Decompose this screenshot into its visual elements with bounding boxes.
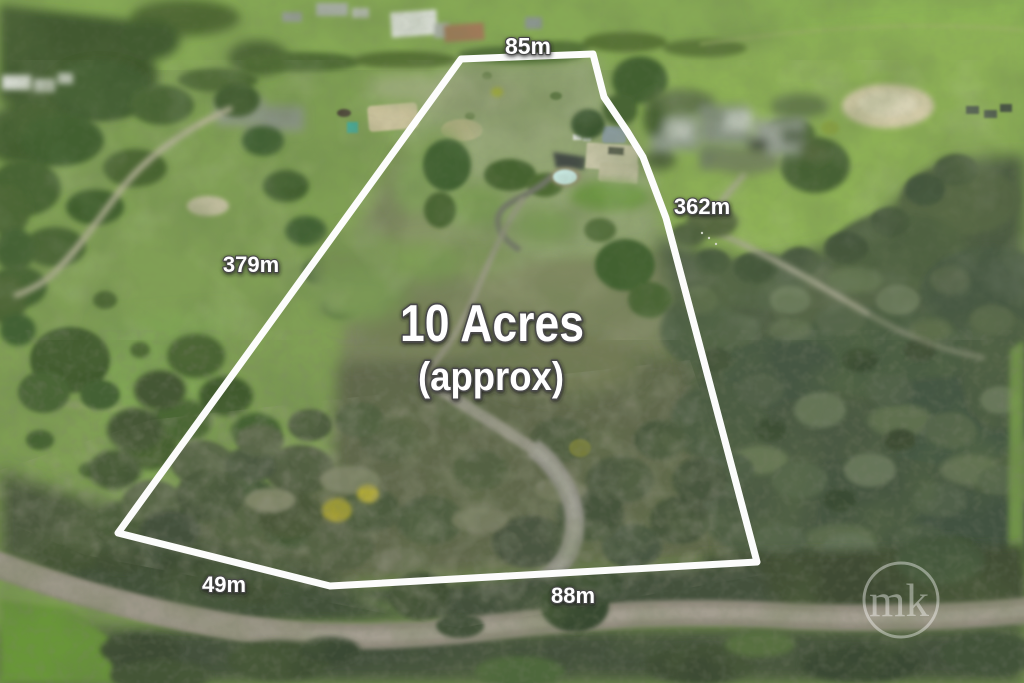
svg-text:88m: 88m xyxy=(551,583,595,608)
svg-text:85m: 85m xyxy=(505,33,551,59)
svg-text:(approx): (approx) xyxy=(418,355,564,399)
svg-text:mk: mk xyxy=(869,575,930,627)
svg-text:49m: 49m xyxy=(202,572,246,597)
svg-text:379m: 379m xyxy=(223,252,279,277)
svg-text:362m: 362m xyxy=(674,194,730,219)
svg-text:10 Acres: 10 Acres xyxy=(400,295,584,353)
